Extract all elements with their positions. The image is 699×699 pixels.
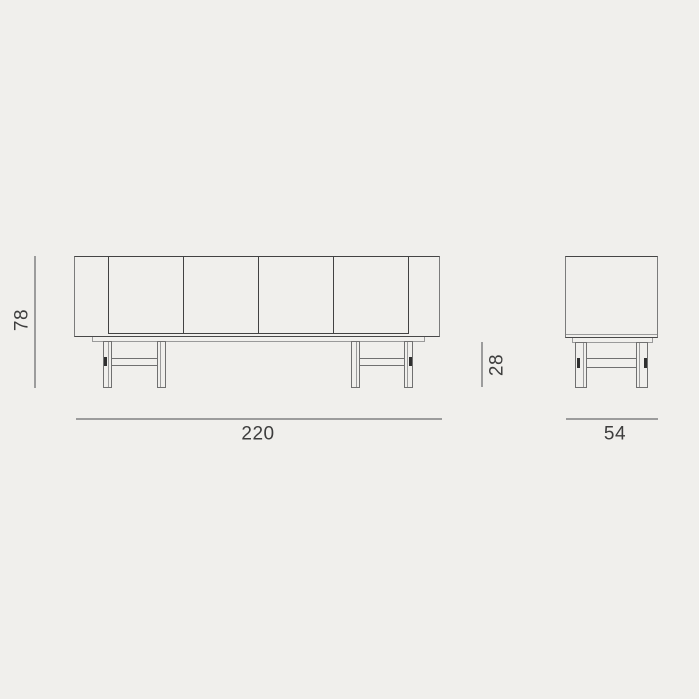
dimension-label-width: 220 <box>241 425 274 444</box>
side-joint-mark-left <box>577 358 580 368</box>
dimension-line-leg-height <box>481 342 483 387</box>
side-joint-mark-right <box>644 358 647 368</box>
dimension-line-height <box>34 256 36 388</box>
dimension-line-depth <box>566 418 658 420</box>
side-cabinet-body <box>565 256 658 338</box>
diagram-canvas: 78 28 220 54 <box>0 0 699 699</box>
front-joint-mark-left <box>104 357 107 366</box>
side-bottom-panel-line <box>566 334 657 335</box>
front-joint-mark-right <box>409 357 412 366</box>
cabinet-door-4 <box>333 256 409 334</box>
dimension-label-height: 78 <box>13 309 32 331</box>
front-leg-2 <box>157 341 166 388</box>
cabinet-door-1 <box>108 256 184 334</box>
front-left-stretcher <box>111 358 158 366</box>
dimension-label-depth: 54 <box>604 425 626 444</box>
cabinet-door-2 <box>183 256 259 334</box>
cabinet-door-3 <box>258 256 334 334</box>
front-plinth-strip <box>92 337 425 342</box>
side-stretcher <box>586 358 637 368</box>
dimension-line-width <box>76 418 442 420</box>
dimension-label-leg-height: 28 <box>488 354 507 376</box>
front-right-stretcher <box>359 358 405 366</box>
